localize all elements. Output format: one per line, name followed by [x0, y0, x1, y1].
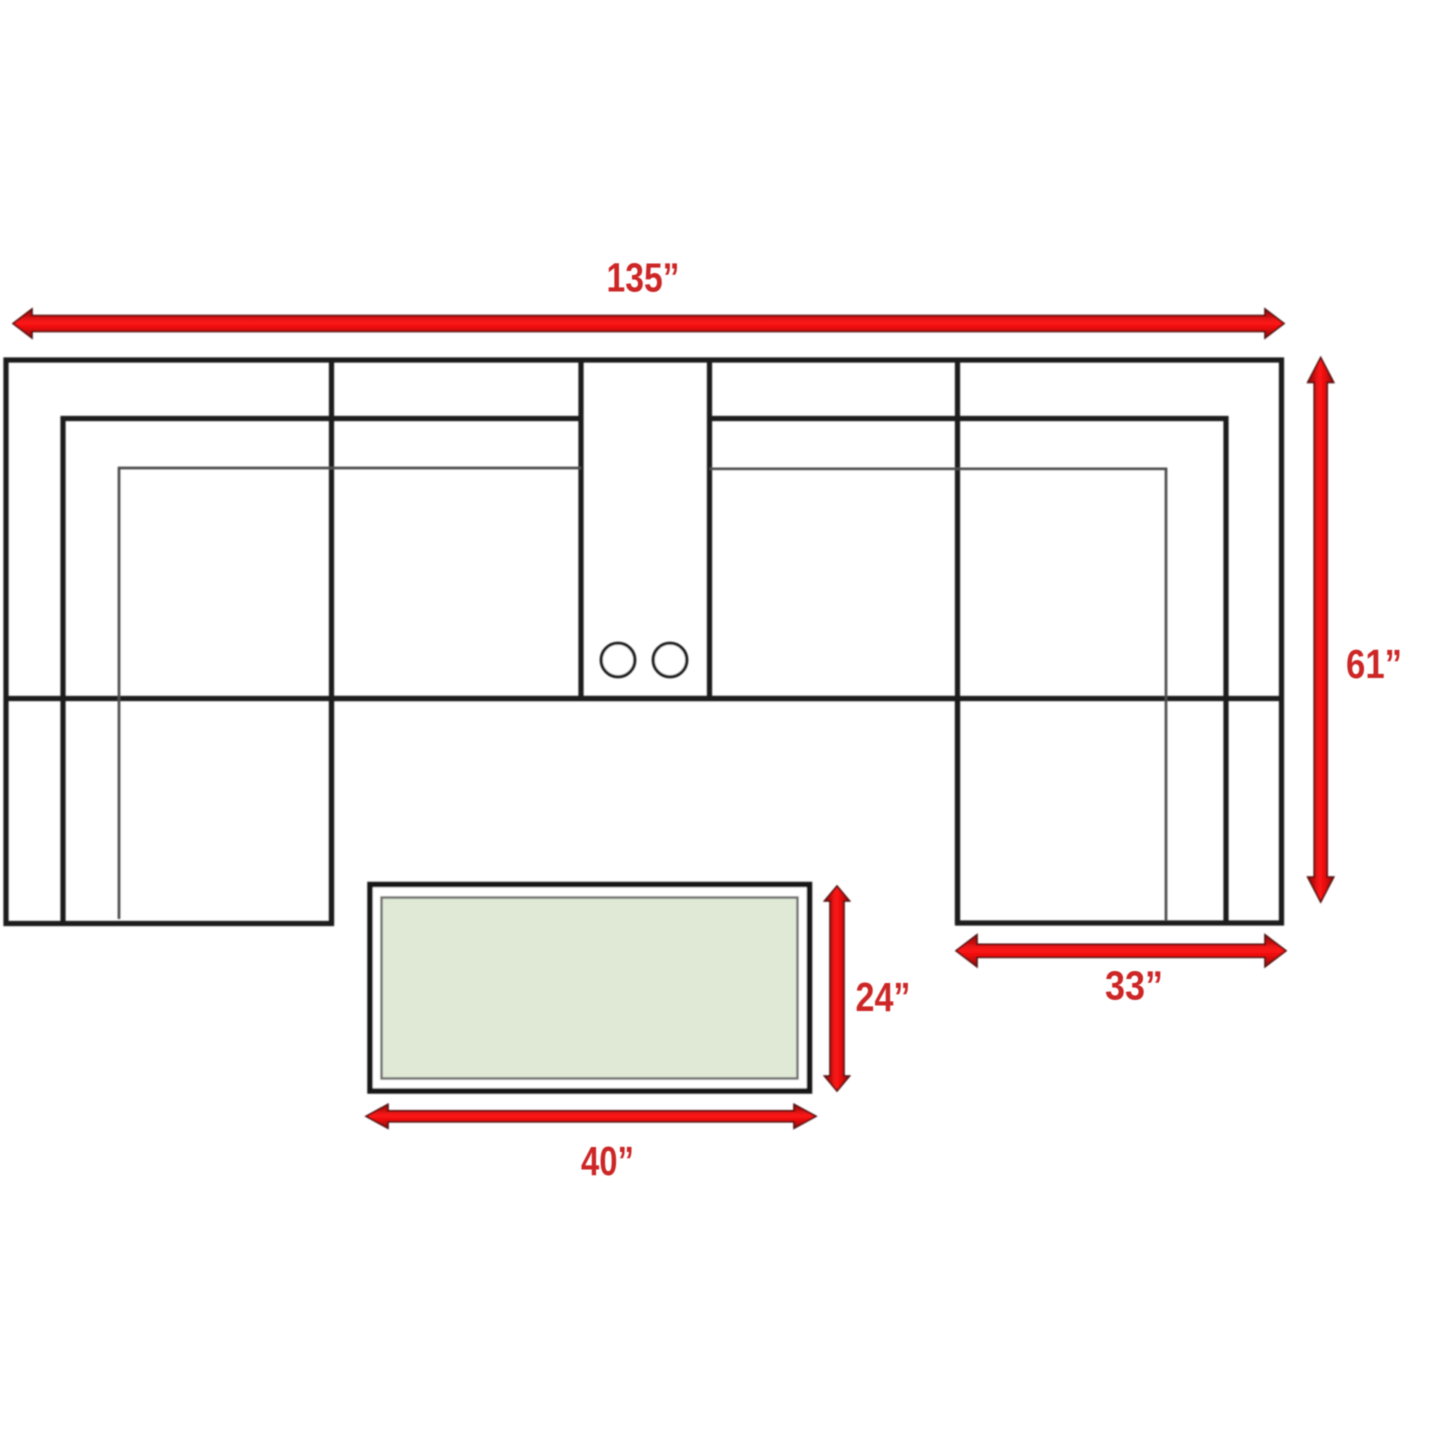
- svg-text:24”: 24”: [856, 974, 911, 1020]
- svg-text:61”: 61”: [1346, 641, 1402, 687]
- svg-text:40”: 40”: [581, 1138, 634, 1184]
- svg-text:135”: 135”: [607, 255, 680, 301]
- svg-text:33”: 33”: [1105, 963, 1163, 1009]
